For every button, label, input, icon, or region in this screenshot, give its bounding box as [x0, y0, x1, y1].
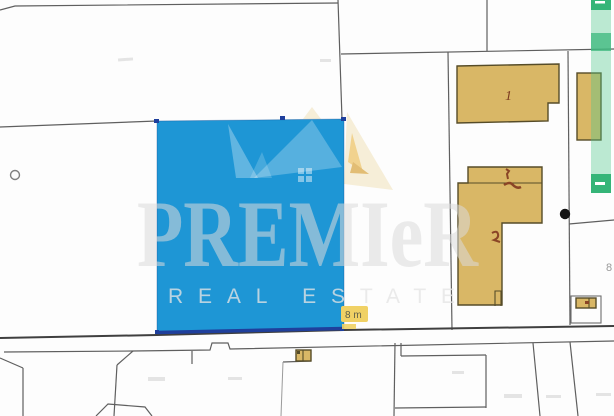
- green-strip-segment: [591, 10, 611, 33]
- green-strip-segment: [591, 51, 611, 174]
- cadastral-map-canvas: 1 8: [0, 0, 614, 416]
- minus-icon[interactable]: [595, 182, 605, 185]
- handwritten-mark: [585, 301, 589, 304]
- watermark-subtitle: REAL ESTATE: [168, 285, 463, 308]
- watermark-title: PREMIeR: [137, 181, 479, 287]
- parcel-vertex-handle[interactable]: [154, 119, 159, 123]
- watermark: PREMIeR REAL ESTATE: [137, 181, 479, 308]
- measurement-label-bg: [342, 324, 356, 329]
- minus-icon[interactable]: [595, 1, 605, 4]
- edge-number-label: 8: [606, 262, 612, 274]
- green-zone-strip: [591, 0, 611, 193]
- parcel-vertex-handle[interactable]: [341, 117, 346, 121]
- building-number-label: 1: [505, 89, 512, 104]
- parcel-vertex-handle[interactable]: [155, 330, 159, 334]
- building-annex-mark: [297, 351, 300, 354]
- measurement-text: 8 m: [345, 310, 362, 321]
- green-strip-segment: [591, 33, 611, 51]
- cadastral-map-view: 1 8: [0, 0, 614, 416]
- dot-marker-icon: [560, 209, 570, 219]
- parcel-vertex-handle[interactable]: [280, 116, 285, 120]
